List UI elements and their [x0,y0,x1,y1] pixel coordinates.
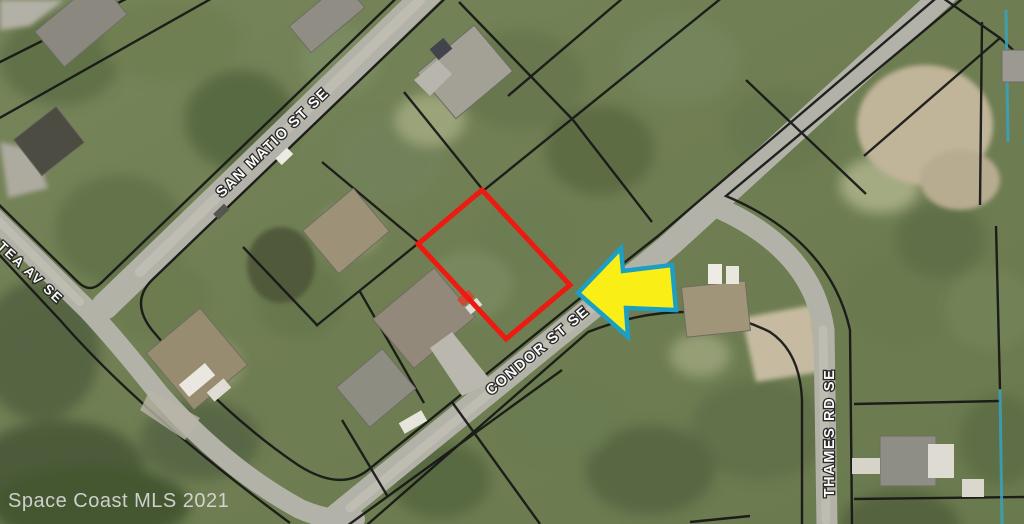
label-thames-rd: THAMES RD SE [822,369,838,498]
map-canvas: SAN MATIO ST SE CONDOR ST SE THAMES RD S… [0,0,1024,524]
car [708,264,722,284]
house [880,436,936,486]
mls-watermark: Space Coast MLS 2021 [8,490,229,512]
driveway [852,458,880,474]
lanai [928,444,954,478]
car [726,266,739,284]
shed [962,479,984,497]
house [682,281,751,337]
pond [247,227,315,303]
aerial-parcel-map: SAN MATIO ST SE CONDOR ST SE THAMES RD S… [0,0,1024,524]
house [1002,50,1024,82]
